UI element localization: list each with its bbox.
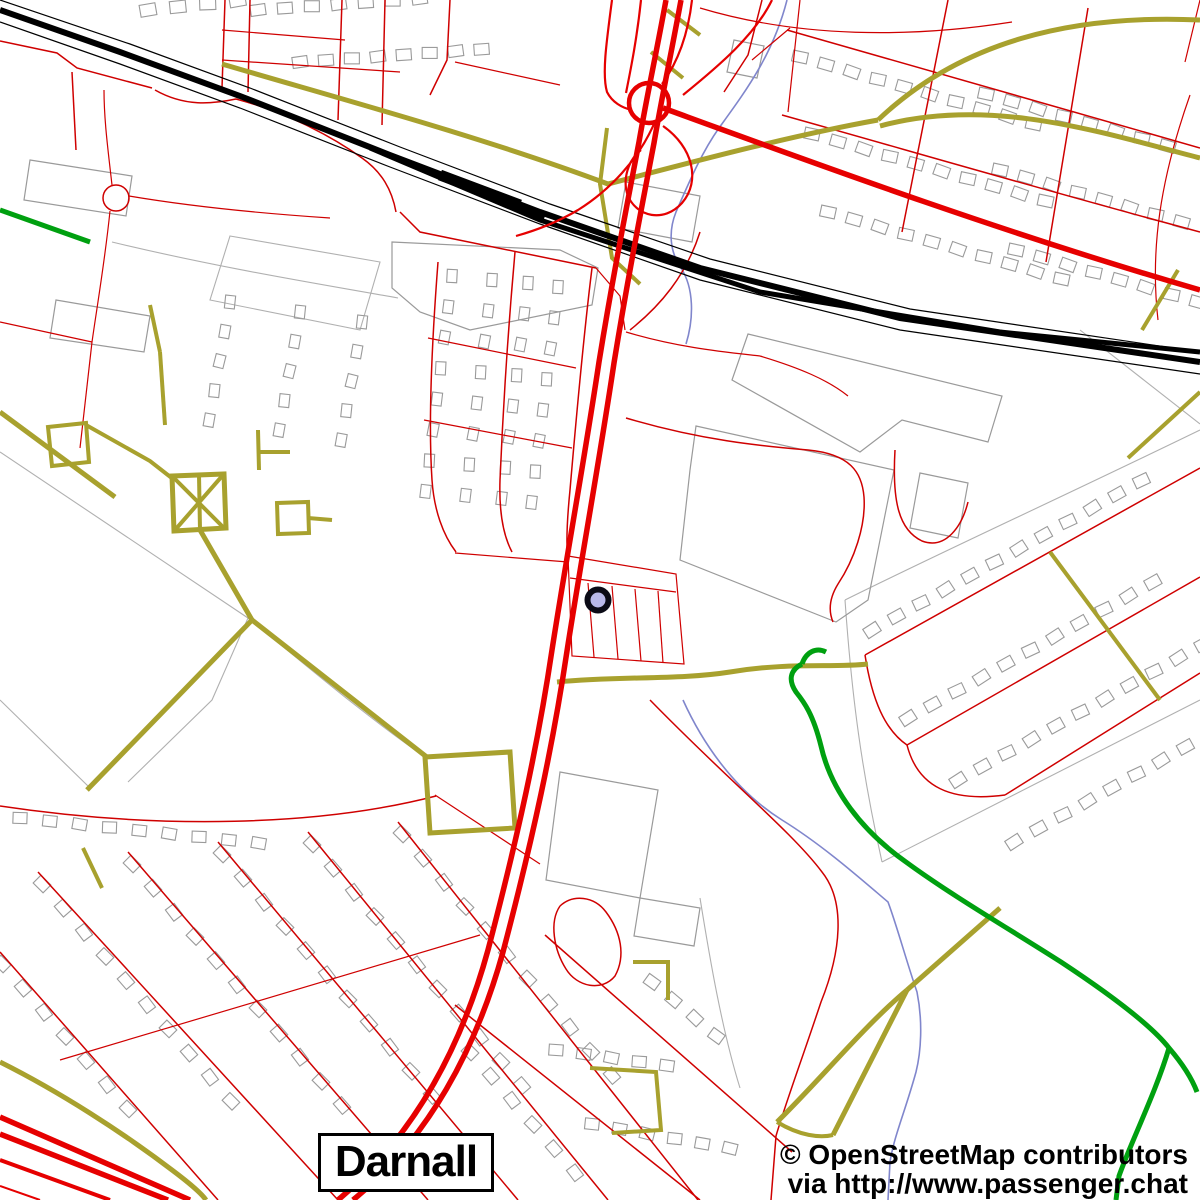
house-footprint <box>201 1068 218 1086</box>
house-footprint <box>482 304 494 318</box>
house-footprint <box>75 923 92 941</box>
house-footprint <box>912 595 930 611</box>
house-footprint <box>219 324 231 339</box>
house-footprint <box>385 0 400 6</box>
house-footprint <box>707 1027 725 1044</box>
house-footprint <box>276 918 294 936</box>
house-footprint <box>1027 264 1045 279</box>
house-footprint <box>442 300 454 314</box>
house-footprint <box>500 461 511 475</box>
house-footprint <box>42 815 57 827</box>
house-footprint <box>659 1059 674 1072</box>
house-footprint <box>411 0 427 5</box>
house-footprint <box>475 366 486 380</box>
house-footprint <box>14 979 31 997</box>
house-footprint <box>251 836 267 849</box>
house-footprint <box>471 396 483 410</box>
house-footprint <box>1011 186 1029 201</box>
house-footprint <box>881 149 898 163</box>
house-footprint <box>1108 486 1126 503</box>
house-footprint <box>435 362 446 376</box>
house-footprint <box>1005 833 1024 850</box>
house-footprint <box>1096 690 1115 707</box>
house-footprint <box>414 849 431 867</box>
house-footprint <box>222 1093 240 1111</box>
house-footprint <box>277 2 293 14</box>
house-footprint <box>345 374 358 389</box>
house-footprint <box>1070 615 1088 632</box>
house-footprint <box>35 1003 52 1021</box>
house-footprint <box>1059 513 1077 529</box>
place-label: Darnall <box>318 1133 494 1192</box>
house-footprint <box>829 134 846 149</box>
house-footprint <box>98 1076 115 1094</box>
house-footprint <box>959 172 976 186</box>
house-footprint <box>961 567 979 584</box>
house-footprint <box>1152 752 1171 769</box>
house-footprint <box>972 669 991 686</box>
house-footprint <box>344 53 359 64</box>
house-footprint <box>427 423 439 438</box>
house-footprint <box>523 276 534 290</box>
mini-roundabout <box>103 185 129 211</box>
map-attribution: © OpenStreetMap contributors via http://… <box>780 1140 1188 1198</box>
map-graphics <box>0 0 1200 1200</box>
house-footprint <box>161 827 177 840</box>
house-footprint <box>1137 279 1155 294</box>
house-footprint <box>279 394 290 408</box>
house-footprint <box>72 818 88 831</box>
house-footprint <box>899 709 918 726</box>
house-footprint <box>213 354 226 369</box>
house-footprint <box>482 1067 499 1085</box>
house-footprint <box>422 47 437 58</box>
house-footprint <box>1169 649 1188 666</box>
house-footprint <box>169 0 186 14</box>
house-footprint <box>96 948 114 966</box>
house-footprint <box>722 1141 738 1155</box>
house-footprint <box>474 43 490 55</box>
house-footprint <box>1021 642 1039 658</box>
house-footprint <box>221 834 236 846</box>
house-footprint <box>1010 540 1029 557</box>
house-footprint <box>289 334 301 349</box>
house-footprint <box>431 392 443 406</box>
house-footprint <box>507 399 519 413</box>
house-footprint <box>1047 717 1065 734</box>
house-footprint <box>1095 192 1112 207</box>
water-layer <box>671 0 921 1200</box>
house-footprint <box>478 334 490 349</box>
house-footprint <box>460 488 472 502</box>
house-footprint <box>1111 272 1128 287</box>
house-footprint <box>923 234 940 249</box>
house-footprint <box>973 758 991 775</box>
house-footprint <box>871 219 889 234</box>
house-footprint <box>632 1056 647 1068</box>
house-footprint <box>1001 257 1018 272</box>
house-footprint <box>192 831 206 842</box>
house-footprint <box>1176 739 1194 756</box>
house-footprint <box>396 49 412 61</box>
house-footprint <box>923 696 941 713</box>
house-footprint <box>358 0 374 8</box>
house-footprint <box>985 554 1003 570</box>
house-footprint <box>511 369 522 383</box>
house-footprint <box>820 205 837 219</box>
house-footprint <box>948 683 966 699</box>
house-footprint <box>119 1100 137 1118</box>
house-footprint <box>1085 265 1102 279</box>
house-footprint <box>544 341 556 356</box>
house-footprint <box>1145 663 1163 679</box>
house-footprint <box>487 273 498 287</box>
house-footprint <box>997 655 1015 672</box>
house-footprint <box>447 269 458 283</box>
attribution-line2: via http://www.passenger.chat <box>780 1169 1188 1198</box>
house-footprint <box>933 163 951 178</box>
house-footprint <box>1194 636 1200 653</box>
house-footprint <box>132 824 147 836</box>
house-footprint <box>1103 779 1121 796</box>
house-footprint <box>351 344 363 359</box>
house-footprint <box>102 822 116 833</box>
house-footprint <box>424 454 435 468</box>
house-footprint <box>1120 677 1138 694</box>
house-footprint <box>331 0 347 11</box>
house-footprint <box>464 458 475 472</box>
house-footprint <box>694 1137 710 1150</box>
house-footprint <box>530 465 541 479</box>
house-footprint <box>496 491 508 505</box>
house-footprint <box>855 141 873 156</box>
house-footprint <box>985 179 1002 194</box>
house-footprint <box>541 373 552 387</box>
house-footprint <box>936 581 955 598</box>
house-footprint <box>540 994 557 1012</box>
house-footprint <box>224 295 235 309</box>
house-footprint <box>643 973 661 990</box>
house-footprint <box>549 1044 564 1056</box>
house-footprint <box>863 621 882 638</box>
house-footprint <box>584 1118 599 1130</box>
house-footprint <box>1078 793 1097 810</box>
house-footprint <box>159 1020 177 1038</box>
house-footprint <box>561 1018 578 1036</box>
house-footprint <box>947 95 964 109</box>
house-footprint <box>1054 807 1072 823</box>
house-footprint <box>341 404 352 418</box>
house-footprint <box>250 4 266 17</box>
house-footprint <box>1132 473 1150 489</box>
house-footprint <box>537 403 549 417</box>
house-footprint <box>209 384 220 398</box>
house-footprint <box>503 1091 520 1109</box>
house-footprint <box>513 1077 530 1095</box>
house-footprint <box>1144 574 1162 591</box>
house-footprint <box>283 364 296 379</box>
house-footprint <box>229 0 247 8</box>
house-footprint <box>949 771 968 788</box>
house-footprint <box>1034 527 1052 544</box>
house-footprint <box>273 423 285 438</box>
house-footprint <box>526 495 538 509</box>
house-footprint <box>524 1116 542 1134</box>
house-footprint <box>292 56 308 69</box>
house-footprint <box>869 72 886 86</box>
house-footprint <box>897 227 914 241</box>
house-footprint <box>297 942 314 960</box>
house-footprint <box>56 1028 74 1046</box>
house-footprint <box>1029 820 1047 837</box>
house-footprint <box>1083 499 1102 516</box>
house-footprint <box>686 1009 704 1027</box>
house-footprint <box>304 1 319 12</box>
location-marker[interactable] <box>588 590 609 611</box>
house-footprint <box>553 280 564 294</box>
house-footprint <box>949 241 967 256</box>
house-footprint <box>514 337 526 352</box>
house-footprint <box>447 45 463 58</box>
house-footprint <box>975 250 992 264</box>
house-footprint <box>603 1051 619 1065</box>
house-footprint <box>1127 766 1145 782</box>
house-footprint <box>1053 272 1070 286</box>
house-footprint <box>1008 243 1025 257</box>
house-footprint <box>1046 628 1065 645</box>
house-footprint <box>1071 704 1089 720</box>
house-footprint <box>817 57 834 72</box>
house-footprint <box>1022 731 1041 748</box>
house-footprint <box>345 883 362 901</box>
house-footprint <box>199 0 215 10</box>
house-footprint <box>843 64 861 79</box>
house-footprint <box>1189 295 1200 310</box>
house-footprint <box>54 899 71 917</box>
house-footprint <box>1119 587 1138 604</box>
house-footprint <box>13 812 27 823</box>
map-canvas[interactable]: Darnall © OpenStreetMap contributors via… <box>0 0 1200 1200</box>
attribution-line1: © OpenStreetMap contributors <box>780 1140 1188 1169</box>
house-footprint <box>998 745 1016 761</box>
house-footprint <box>667 1132 682 1144</box>
house-footprint <box>139 3 157 18</box>
house-footprint <box>1037 194 1054 208</box>
house-footprint <box>845 212 862 227</box>
house-footprint <box>335 433 347 448</box>
house-footprint <box>318 54 334 66</box>
house-footprint <box>887 608 905 625</box>
house-footprint <box>203 413 215 428</box>
house-footprint <box>180 1044 197 1062</box>
house-footprint <box>420 484 432 498</box>
house-footprint <box>1059 257 1077 272</box>
